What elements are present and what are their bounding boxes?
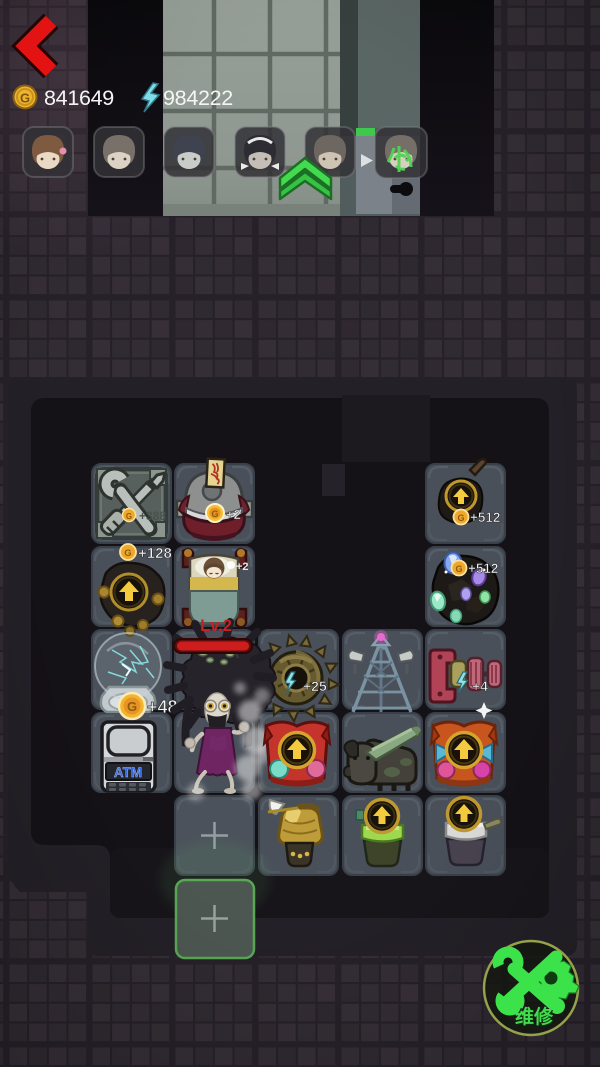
svg-text:841649: 841649 xyxy=(44,86,114,110)
svg-text:G: G xyxy=(20,91,30,106)
svg-text:984222: 984222 xyxy=(163,86,233,110)
svg-text:维修: 维修 xyxy=(515,1005,554,1028)
